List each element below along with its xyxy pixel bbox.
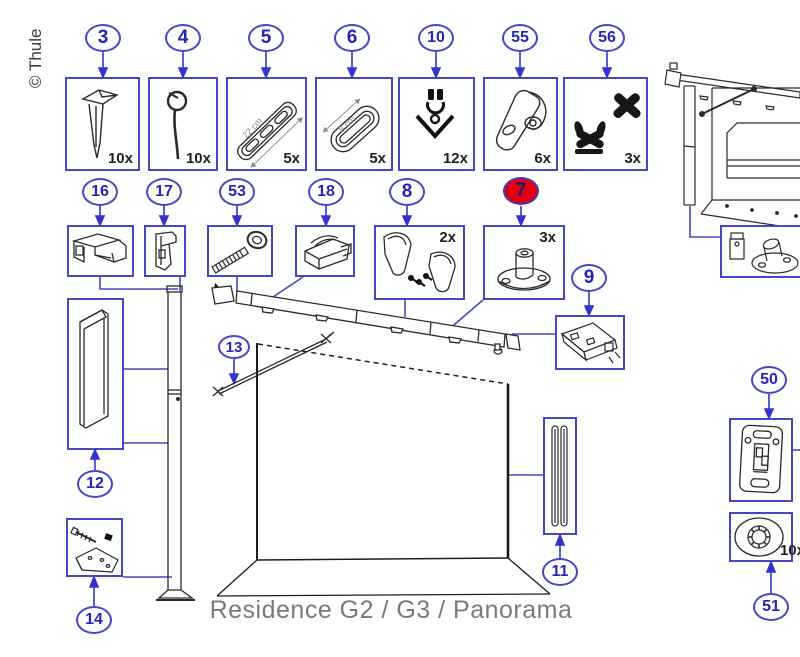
part-5-qty: 5x <box>283 150 300 167</box>
callout-6-number: 6 <box>347 27 358 49</box>
callout-53[interactable]: 53 <box>219 178 255 206</box>
callout-3[interactable]: 3 <box>85 24 121 52</box>
callout-13[interactable]: 13 <box>218 335 250 359</box>
part-4-qty: 10x <box>186 150 211 167</box>
part-box-51[interactable]: 10x <box>729 512 793 562</box>
side-wall-drawing <box>665 63 800 229</box>
side-panel-icon <box>69 300 122 448</box>
part-box-adapter[interactable] <box>720 225 800 278</box>
callout-4-number: 4 <box>178 27 189 49</box>
part-box-55[interactable]: 6x <box>483 77 558 171</box>
part-8-qty: 2x <box>439 229 456 246</box>
callout-11[interactable]: 11 <box>542 558 578 586</box>
callout-14[interactable]: 14 <box>76 606 112 634</box>
callout-4[interactable]: 4 <box>165 24 201 52</box>
callout-12[interactable]: 12 <box>77 470 113 498</box>
parts-diagram-page: © Thule Residence G2 / G3 / Panorama 10x… <box>0 0 800 657</box>
awning-front-panel-drawing <box>217 343 550 596</box>
tension-rafter-housing-icon <box>557 317 623 368</box>
callout-17[interactable]: 17 <box>146 178 182 206</box>
foot-plate-icon <box>68 520 121 575</box>
part-box-50[interactable] <box>729 418 793 502</box>
part-box-7[interactable]: 3x <box>483 225 565 300</box>
part-6-qty: 5x <box>369 150 386 167</box>
wall-plate-icon <box>731 420 791 500</box>
callout-16-number: 16 <box>91 183 109 201</box>
tension-rods-icon <box>545 419 575 533</box>
callout-17-number: 17 <box>155 183 173 201</box>
part-3-qty: 10x <box>108 150 133 167</box>
callout-6[interactable]: 6 <box>334 24 370 52</box>
part-box-5[interactable]: 22 cm 5x <box>226 77 307 171</box>
callout-55[interactable]: 55 <box>502 24 538 52</box>
part-10-qty: 12x <box>443 150 468 167</box>
callout-50[interactable]: 50 <box>751 366 787 394</box>
part-box-6[interactable]: 8 cm 5x <box>315 77 393 171</box>
part-box-8[interactable]: 2x <box>374 225 465 300</box>
callout-10-number: 10 <box>427 29 445 47</box>
adapter-parts-icon <box>722 227 800 276</box>
part-box-10[interactable]: 12x <box>398 77 475 171</box>
callout-18[interactable]: 18 <box>308 178 344 206</box>
callout-9-number: 9 <box>584 267 595 289</box>
part-box-56[interactable]: 3x <box>563 77 648 171</box>
part-box-14[interactable] <box>66 518 123 577</box>
callout-51-number: 51 <box>762 598 780 616</box>
callout-3-number: 3 <box>98 27 109 49</box>
callout-56[interactable]: 56 <box>589 24 625 52</box>
part-box-9[interactable] <box>555 315 625 370</box>
end-bracket-icon <box>146 227 184 275</box>
callout-14-number: 14 <box>85 611 103 629</box>
part-box-53[interactable] <box>207 225 273 277</box>
callout-51[interactable]: 51 <box>753 593 789 621</box>
copyright-label: © Thule <box>26 29 46 88</box>
part-55-qty: 6x <box>534 150 551 167</box>
callout-8[interactable]: 8 <box>389 178 425 206</box>
callout-10[interactable]: 10 <box>418 24 454 52</box>
clamp-block-icon <box>297 227 353 275</box>
callout-5-number: 5 <box>261 27 272 49</box>
callout-5[interactable]: 5 <box>248 24 284 52</box>
callout-16[interactable]: 16 <box>82 178 118 206</box>
callout-7-number: 7 <box>516 180 527 202</box>
callout-7-highlighted[interactable]: 7 <box>503 177 539 205</box>
callout-12-number: 12 <box>86 475 104 493</box>
wall-bracket-icon <box>69 227 132 275</box>
part-box-3[interactable]: 10x <box>65 77 140 171</box>
part-56-qty: 3x <box>624 150 641 167</box>
part-box-16[interactable] <box>67 225 134 277</box>
callout-53-number: 53 <box>228 183 246 201</box>
part-box-17[interactable] <box>144 225 186 277</box>
eye-bolt-icon <box>209 227 271 275</box>
callout-55-number: 55 <box>511 29 529 47</box>
part-7-qty: 3x <box>539 229 556 246</box>
callout-11-number: 11 <box>552 563 569 581</box>
part-box-18[interactable] <box>295 225 355 277</box>
callout-13-number: 13 <box>226 339 243 356</box>
part-box-4[interactable]: 10x <box>148 77 218 171</box>
product-caption: Residence G2 / G3 / Panorama <box>200 596 582 625</box>
part-51-qty: 10x <box>780 542 800 559</box>
callout-8-number: 8 <box>402 181 413 203</box>
callout-18-number: 18 <box>317 183 335 201</box>
part-box-11[interactable] <box>543 417 577 535</box>
callout-56-number: 56 <box>598 29 616 47</box>
callout-9[interactable]: 9 <box>571 264 607 292</box>
callout-50-number: 50 <box>760 371 778 389</box>
part-box-12[interactable] <box>67 298 124 450</box>
